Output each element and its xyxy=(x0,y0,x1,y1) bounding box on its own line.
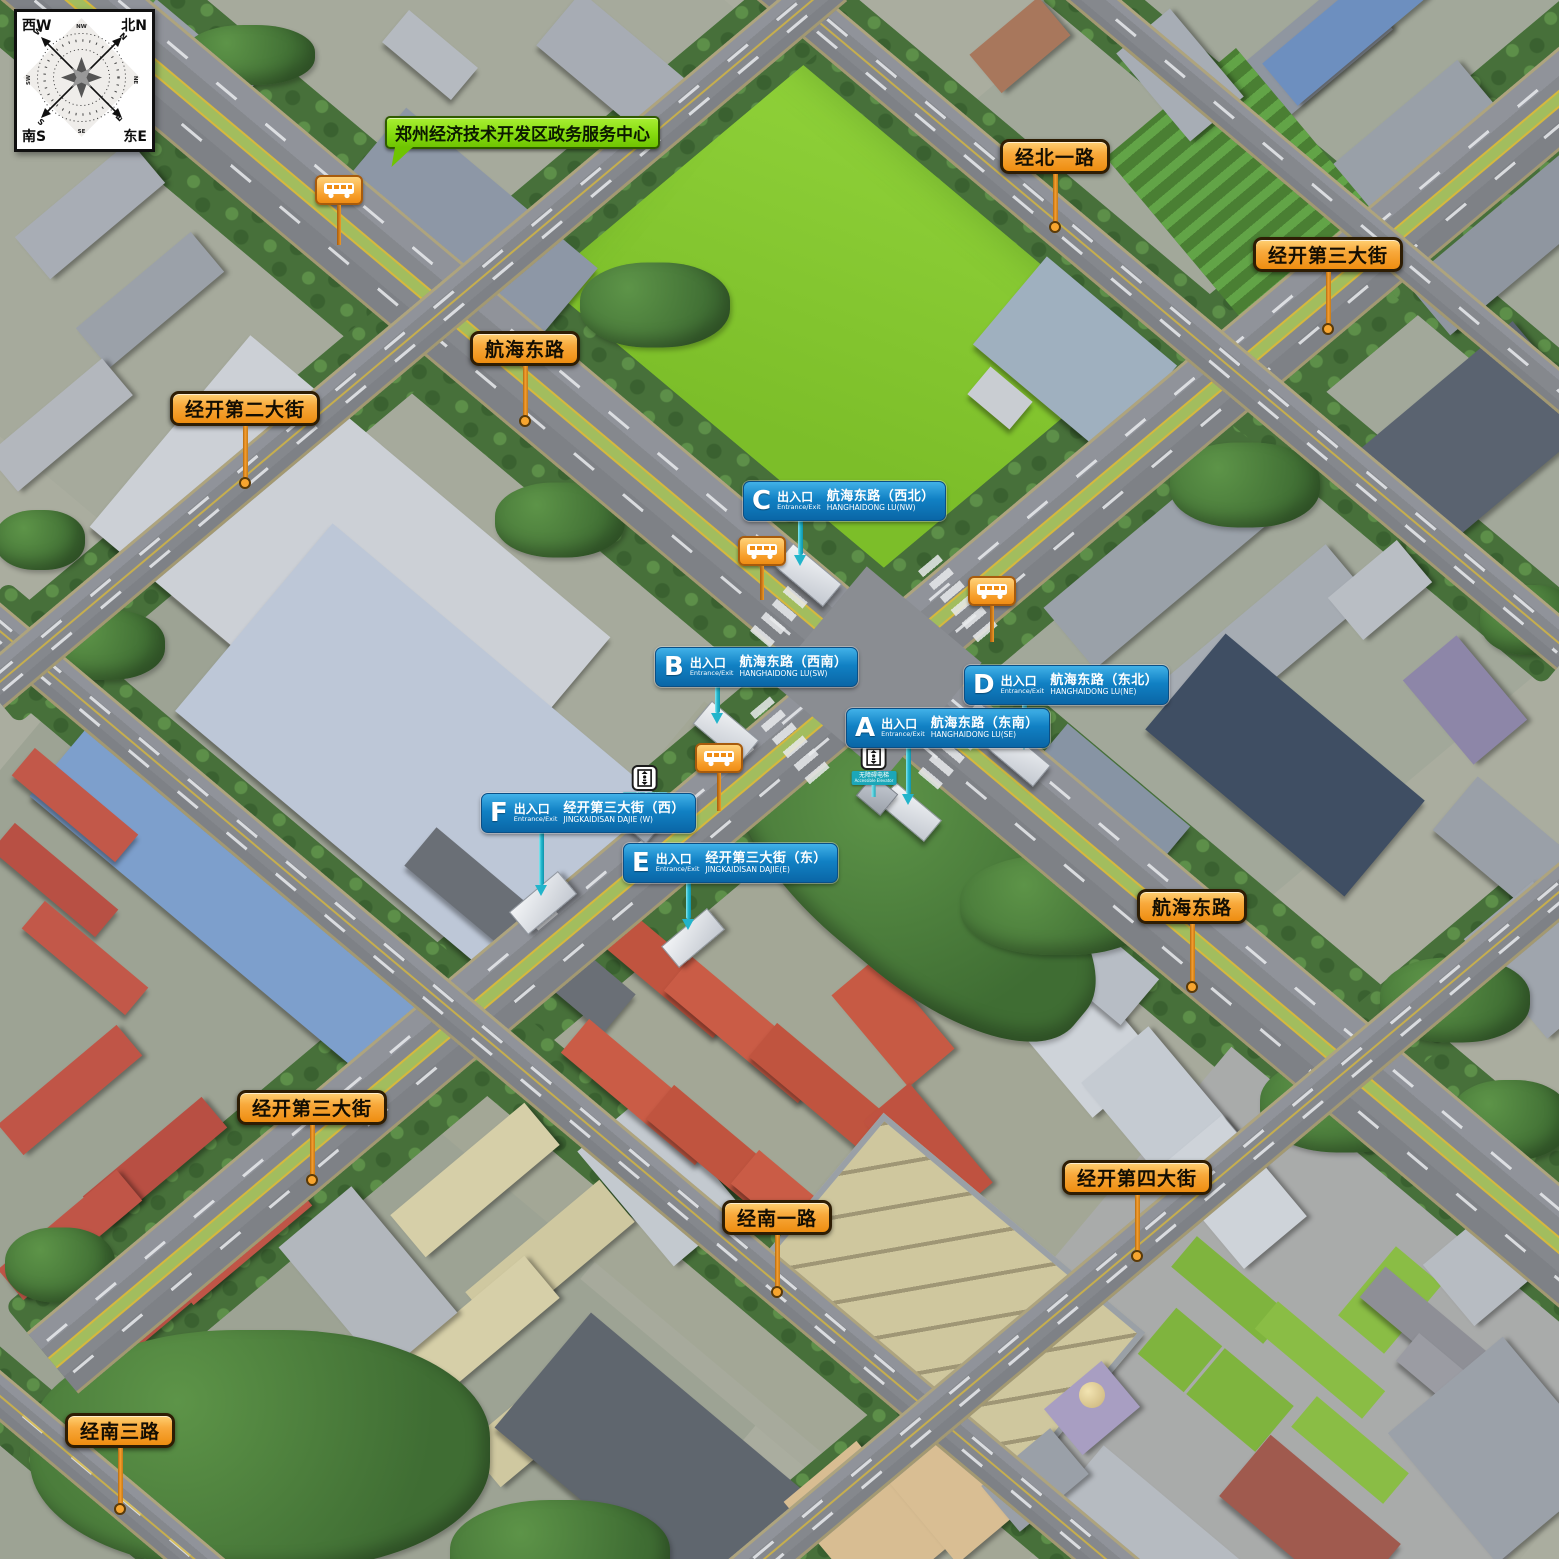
bus-icon xyxy=(703,749,735,767)
road-label-jingkai-3-dajie-north: 经开第三大街 xyxy=(1253,237,1403,335)
road-label-hanghai-donglu-east: 航海东路 xyxy=(1137,889,1247,993)
exit-sign-e: E 出入口Entrance/Exit 经开第三大街（东）JINGKAIDISAN… xyxy=(623,843,838,883)
compass-rose-graphic: N W S E NW SE SW NE xyxy=(17,12,146,143)
exit-sign-c: C 出入口Entrance/Exit 航海东路（西北）HANGHAIDONG L… xyxy=(743,481,946,521)
compass-rose: 西W 北N 南S 东E N W S E xyxy=(14,9,155,152)
exit-entrance-label: 出入口Entrance/Exit xyxy=(514,803,558,823)
bus-stop-icon xyxy=(695,743,743,773)
exit-sign-d: D 出入口Entrance/Exit 航海东路（东北）HANGHAIDONG L… xyxy=(964,665,1169,705)
exit-location-label: 航海东路（东北）HANGHAIDONG LU(NE) xyxy=(1050,674,1158,697)
bus-stop xyxy=(738,536,786,600)
bus-stop xyxy=(695,743,743,811)
exit-sign-b: B 出入口Entrance/Exit 航海东路（西南）HANGHAIDONG L… xyxy=(655,647,858,687)
bus-icon xyxy=(323,181,355,199)
exit-letter: E xyxy=(632,850,650,876)
road-label-dot xyxy=(1049,221,1061,233)
exit-pointer-a xyxy=(902,742,914,805)
tree-cluster xyxy=(580,263,730,348)
exit-letter: A xyxy=(855,715,875,741)
road-label-dot xyxy=(1322,323,1334,335)
exit-sign-f: F 出入口Entrance/Exit 经开第三大街（西）JINGKAIDISAN… xyxy=(481,793,696,833)
road-label-jingkai-3-dajie-south: 经开第三大街 xyxy=(237,1090,387,1186)
road-label-pin xyxy=(1325,272,1330,324)
exit-pointer-arrow xyxy=(794,555,806,566)
bus-icon xyxy=(976,582,1008,600)
road-label-dot xyxy=(771,1286,783,1298)
elevator-pointer xyxy=(872,785,876,797)
road-label-pin xyxy=(1052,174,1057,222)
road-label-pin xyxy=(309,1125,314,1175)
road-label-dot xyxy=(519,415,531,427)
exit-pointer-e xyxy=(682,877,694,930)
road-label-jingnan-3-lu: 经南三路 xyxy=(65,1413,175,1515)
bus-stop-icon xyxy=(968,576,1016,606)
svg-text:SE: SE xyxy=(78,129,86,135)
exit-entrance-label: 出入口Entrance/Exit xyxy=(656,853,700,873)
bus-stop-icon xyxy=(738,536,786,566)
svg-text:E: E xyxy=(114,113,124,123)
bus-stop xyxy=(968,576,1016,642)
road-label-jingnan-1-lu: 经南一路 xyxy=(722,1200,832,1298)
exit-letter: B xyxy=(664,654,684,680)
exit-pointer-b xyxy=(711,681,723,724)
road-label-text: 经开第四大街 xyxy=(1062,1160,1212,1195)
exit-entrance-label: 出入口Entrance/Exit xyxy=(690,657,734,677)
exit-pointer-f xyxy=(535,827,547,896)
road-label-dot xyxy=(239,477,251,489)
accessible-elevator-marker: 无障碍电梯Accessible Elevator xyxy=(852,744,897,797)
building-dome xyxy=(1079,1382,1105,1408)
road-label-pin xyxy=(774,1235,779,1287)
road-label-dot xyxy=(114,1503,126,1515)
bus-stop-icon xyxy=(315,175,363,205)
exit-entrance-label: 出入口Entrance/Exit xyxy=(881,718,925,738)
tree-cluster xyxy=(0,510,85,570)
road-label-text: 经开第二大街 xyxy=(170,391,320,426)
svg-text:NE: NE xyxy=(132,76,138,85)
poi-label-text: 郑州经济技术开发区政务服务中心 xyxy=(395,125,650,145)
road-label-dot xyxy=(306,1174,318,1186)
bus-stop-pole xyxy=(760,566,764,600)
svg-text:S: S xyxy=(36,117,47,128)
exit-pointer-arrow xyxy=(711,713,723,724)
exit-letter: C xyxy=(752,488,771,514)
road-label-jingkai-4-dajie: 经开第四大街 xyxy=(1062,1160,1212,1262)
road-label-jingkai-2-dajie: 经开第二大街 xyxy=(170,391,320,489)
exit-entrance-label: 出入口Entrance/Exit xyxy=(777,491,821,511)
road-label-text: 经北一路 xyxy=(1000,139,1110,174)
road-label-text: 经南一路 xyxy=(722,1200,832,1235)
exit-location-label: 经开第三大街（东）JINGKAIDISAN DAJIE(E) xyxy=(705,852,827,875)
exit-pointer-arrow xyxy=(535,885,547,896)
road-label-pin xyxy=(1189,924,1194,982)
accessible-elevator-icon xyxy=(632,765,658,791)
exit-letter: D xyxy=(973,672,995,698)
exit-entrance-label: 出入口Entrance/Exit xyxy=(1001,675,1045,695)
accessible-elevator-label: 无障碍电梯Accessible Elevator xyxy=(852,771,897,785)
svg-text:W: W xyxy=(32,25,45,38)
exit-letter: F xyxy=(490,800,508,826)
bus-stop xyxy=(315,175,363,245)
road-label-dot xyxy=(1131,1250,1143,1262)
exit-location-label: 航海东路（西南）HANGHAIDONG LU(SW) xyxy=(739,656,847,679)
map-canvas: 无障碍电梯Accessible Elevator 无障碍电梯Accessible… xyxy=(0,0,1559,1559)
road-label-text: 经开第三大街 xyxy=(1253,237,1403,272)
road-label-text: 航海东路 xyxy=(1137,889,1247,924)
svg-text:NW: NW xyxy=(76,24,87,30)
road-label-dot xyxy=(1186,981,1198,993)
exit-location-label: 经开第三大街（西）JINGKAIDISAN DAJIE (W) xyxy=(563,802,685,825)
road-label-pin xyxy=(242,426,247,478)
exit-location-label: 航海东路（东南）HANGHAIDONG LU(SE) xyxy=(931,717,1039,740)
road-label-pin xyxy=(1134,1195,1139,1251)
svg-text:SW: SW xyxy=(26,75,32,85)
bus-stop-pole xyxy=(990,606,994,642)
exit-pointer-arrow xyxy=(682,919,694,930)
road-label-pin xyxy=(117,1448,122,1504)
bus-stop-pole xyxy=(717,773,721,811)
road-label-pin xyxy=(522,366,527,416)
road-label-hanghai-donglu-west: 航海东路 xyxy=(470,331,580,427)
road-label-text: 航海东路 xyxy=(470,331,580,366)
poi-label-government-service-center: 郑州经济技术开发区政务服务中心 xyxy=(385,116,660,149)
exit-pointer-arrow xyxy=(902,794,914,805)
exit-sign-a: A 出入口Entrance/Exit 航海东路（东南）HANGHAIDONG L… xyxy=(846,708,1050,748)
bus-icon xyxy=(746,542,778,560)
road-label-text: 经开第三大街 xyxy=(237,1090,387,1125)
road-label-jingbei-1-lu: 经北一路 xyxy=(1000,139,1110,233)
exit-location-label: 航海东路（西北）HANGHAIDONG LU(NW) xyxy=(827,490,935,513)
bus-stop-pole xyxy=(337,205,341,245)
road-label-text: 经南三路 xyxy=(65,1413,175,1448)
